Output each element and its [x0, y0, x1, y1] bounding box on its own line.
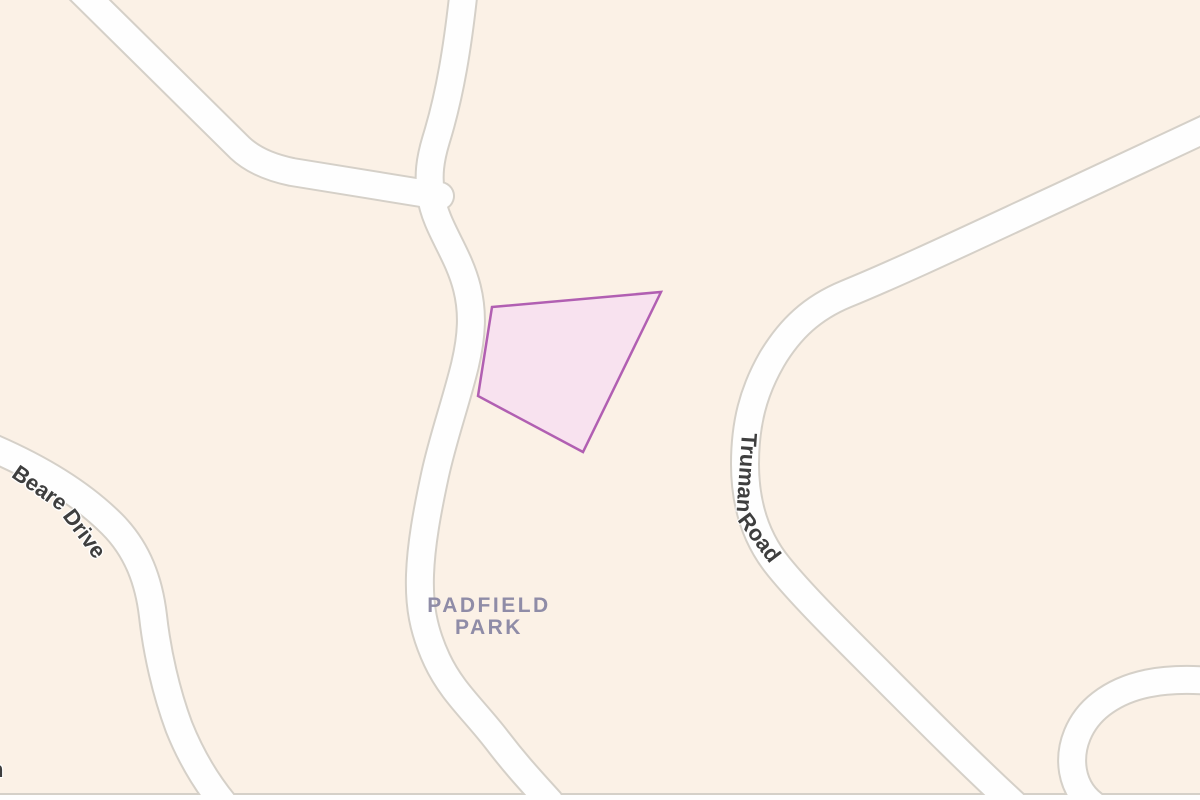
- map-tile-layer: [0, 0, 1200, 800]
- road-beare-drive: [0, 446, 224, 800]
- road-top-left: [78, 0, 440, 196]
- map-canvas[interactable]: Beare Drive Truman Road n PADFIELD PARK: [0, 0, 1200, 800]
- highlighted-parcel-polygon: [478, 292, 661, 452]
